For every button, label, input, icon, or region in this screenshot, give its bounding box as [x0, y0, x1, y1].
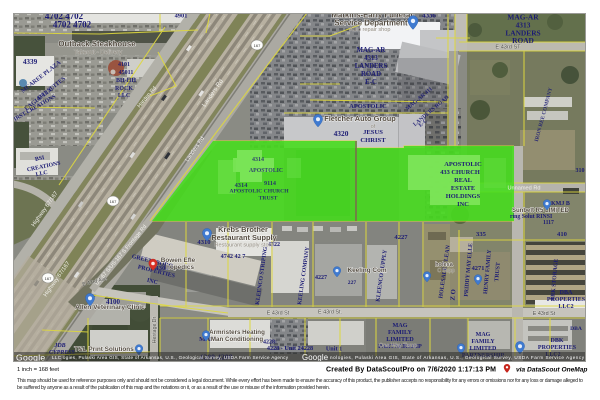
svg-text:Heritage Dr: Heritage Dr — [152, 316, 158, 343]
svg-text:PROPERTIES: PROPERTIES — [538, 345, 577, 351]
svg-text:Fletcher Auto Group: Fletcher Auto Group — [324, 114, 396, 123]
svg-text:HOLDINGS: HOLDINGS — [446, 193, 481, 200]
svg-text:LLC ogies, Pulaski Area GIS, S: LLC ogies, Pulaski Area GIS, State of Ar… — [52, 355, 289, 360]
svg-text:of: of — [371, 124, 376, 130]
svg-text:LIMITED: LIMITED — [470, 346, 497, 352]
svg-text:227: 227 — [348, 280, 357, 286]
svg-text:4320: 4320 — [334, 129, 349, 138]
svg-text:E-C: E-C — [365, 79, 377, 86]
svg-text:LIMITED: LIMITED — [386, 336, 414, 343]
svg-text:4227: 4227 — [315, 275, 327, 281]
svg-text:REAL: REAL — [454, 177, 472, 184]
svg-text:C Supp: C Supp — [437, 268, 454, 274]
svg-text:4742 42 7: 4742 42 7 — [221, 253, 246, 260]
svg-text:E 43rd St: E 43rd St — [533, 311, 556, 317]
svg-text:ROCK: ROCK — [115, 86, 133, 92]
svg-text:E 43rd St: E 43rd St — [267, 311, 290, 317]
svg-text:433 CHURCH: 433 CHURCH — [440, 169, 480, 176]
svg-text:APOSTOLIC CHURCH: APOSTOLIC CHURCH — [229, 189, 289, 195]
svg-text:4101: 4101 — [118, 62, 130, 68]
svg-text:LLC: LLC — [118, 93, 130, 99]
svg-text:1117: 1117 — [543, 220, 554, 226]
svg-text:1 inch = 168 feet: 1 inch = 168 feet — [17, 367, 59, 373]
svg-text:LANDERS: LANDERS — [355, 63, 388, 70]
svg-text:APOSTOLIC: APOSTOLIC — [249, 168, 283, 174]
svg-text:Unit 1: Unit 1 — [326, 346, 342, 353]
svg-text:PROPERTIES: PROPERTIES — [547, 297, 586, 303]
svg-text:APOSTOLIC: APOSTOLIC — [349, 103, 387, 110]
svg-text:335: 335 — [476, 231, 487, 238]
svg-text:Restaurant Supply: Restaurant Supply — [211, 233, 277, 242]
svg-text:T&L Print Solutions: T&L Print Solutions — [74, 346, 134, 353]
svg-text:ROAD: ROAD — [361, 71, 381, 78]
svg-text:Man Conditioning: Man Conditioning — [211, 336, 263, 343]
svg-text:This map should be used for re: This map should be used for reference pu… — [17, 378, 583, 384]
svg-text:410: 410 — [557, 231, 568, 238]
svg-text:FAMILY: FAMILY — [471, 339, 495, 345]
svg-text:MAG-AR: MAG-AR — [357, 47, 386, 54]
svg-text:167: 167 — [45, 276, 52, 281]
svg-text:Allen Veterinary Clinic: Allen Veterinary Clinic — [75, 304, 145, 311]
svg-text:4310: 4310 — [197, 239, 211, 246]
svg-text:Takeout - Delivery: Takeout - Delivery — [74, 50, 122, 56]
svg-text:4702 4702: 4702 4702 — [53, 20, 92, 30]
svg-text:Unnamed Rd: Unnamed Rd — [508, 186, 541, 192]
svg-text:4313: 4313 — [364, 55, 378, 62]
svg-text:4228 - Unit 24228: 4228 - Unit 24228 — [267, 345, 313, 352]
svg-text:Keeling Com: Keeling Com — [347, 267, 386, 274]
svg-text:DBA: DBA — [570, 326, 582, 332]
svg-text:4227: 4227 — [394, 234, 408, 241]
svg-text:Google: Google — [302, 353, 328, 362]
svg-text:APOSTOLIC: APOSTOLIC — [444, 161, 482, 168]
svg-text:BH-HH: BH-HH — [116, 78, 136, 84]
svg-text:CHRIST: CHRIST — [360, 137, 386, 144]
svg-text:Created By DataScoutPro on 7/6: Created By DataScoutPro on 7/6/2020 1:17… — [326, 367, 496, 374]
svg-text:E 43rd St.: E 43rd St. — [318, 310, 342, 316]
svg-text:FAMILY: FAMILY — [388, 329, 413, 336]
svg-text:KMJ B: KMJ B — [551, 201, 570, 207]
svg-text:167: 167 — [110, 199, 117, 204]
svg-text:be suffered by anyone as a res: be suffered by anyone as a result of the… — [17, 385, 330, 391]
svg-text:E 43rd ST: E 43rd ST — [495, 45, 521, 51]
svg-text:167: 167 — [254, 43, 261, 48]
svg-text:ROAD: ROAD — [512, 36, 534, 45]
svg-text:via DataScout OneMap: via DataScout OneMap — [516, 367, 587, 374]
svg-text:4314: 4314 — [252, 157, 264, 163]
svg-text:Restaurant supply store: Restaurant supply store — [214, 243, 273, 249]
svg-text:hopedics: hopedics — [166, 264, 194, 271]
svg-text:nologies, Pulaski Area GIS, St: nologies, Pulaski Area GIS, State of Ark… — [330, 355, 585, 360]
svg-text:TRUST: TRUST — [259, 196, 278, 202]
svg-text:DBK: DBK — [550, 338, 563, 344]
svg-text:Outback Steakhouse: Outback Steakhouse — [58, 40, 136, 49]
svg-text:9114: 9114 — [264, 180, 276, 187]
svg-text:Z O: Z O — [450, 289, 458, 301]
svg-text:4339: 4339 — [23, 58, 38, 66]
svg-text:45011: 45011 — [119, 70, 134, 76]
svg-text:DBA: DBA — [560, 290, 573, 296]
svg-text:ESTATE: ESTATE — [451, 185, 475, 192]
svg-text:310: 310 — [576, 168, 585, 174]
svg-text:MAG: MAG — [392, 322, 407, 329]
svg-text:Auto repair shop: Auto repair shop — [349, 27, 390, 33]
svg-text:4271: 4271 — [472, 265, 485, 272]
svg-text:JESUS: JESUS — [363, 129, 383, 136]
svg-text:Armristers Heating: Armristers Heating — [209, 329, 265, 336]
svg-text:JDB: JDB — [53, 343, 65, 349]
svg-text:INC: INC — [457, 201, 469, 208]
svg-text:LLC2: LLC2 — [558, 304, 573, 310]
svg-text:Bowen Efle: Bowen Efle — [161, 257, 196, 264]
svg-text:One Way Temp: One Way Temp — [379, 343, 417, 349]
svg-text:MAG: MAG — [476, 332, 491, 338]
